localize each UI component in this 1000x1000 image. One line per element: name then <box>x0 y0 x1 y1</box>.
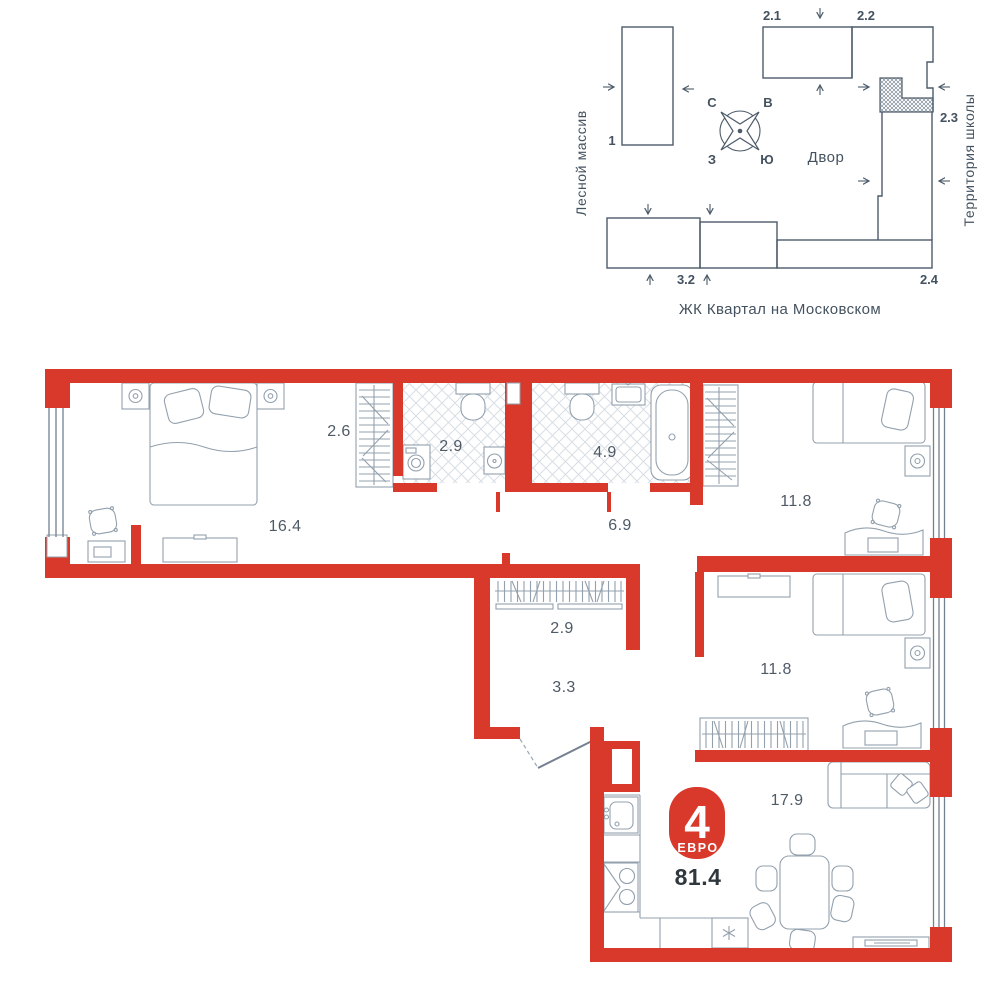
room-label-bedroom1: 11.8 <box>780 493 812 510</box>
hall-closet-rack <box>495 581 624 609</box>
room-label-hallway: 3.3 <box>552 679 575 696</box>
wardrobe-rack <box>356 383 393 487</box>
fridge <box>712 918 748 948</box>
window-bedroom2 <box>934 598 945 728</box>
kitchen-sink <box>604 797 638 833</box>
badge-type-label: ЕВРО <box>677 841 718 855</box>
total-area-value: 81.4 <box>675 864 722 890</box>
compass-south-label: Ю <box>760 152 773 167</box>
single-bed <box>813 382 925 443</box>
entrance-door <box>520 739 592 768</box>
nightstand-lamp <box>122 383 149 409</box>
building-2-2-label: 2.2 <box>857 8 875 23</box>
building-2-3-outline <box>878 112 932 240</box>
complex-caption: ЖК Квартал на Московском <box>679 301 881 318</box>
nightstand-lamp <box>257 383 284 409</box>
nightstand-lamp <box>905 638 930 668</box>
desk-chair <box>88 506 118 535</box>
desk-chair <box>865 687 896 717</box>
single-bed <box>813 574 925 635</box>
building-1-label: 1 <box>608 133 615 148</box>
tv-stand <box>163 535 237 562</box>
desk <box>843 721 921 748</box>
sofa <box>828 762 930 808</box>
window-living <box>934 797 945 927</box>
bedroom1-furniture <box>703 382 930 555</box>
building-2-1-label: 2.1 <box>763 8 781 23</box>
site-plan: С В З Ю 1 2.1 2.2 2.3 2.4 3.2 Лесной мас… <box>573 8 977 318</box>
nightstand-lamp <box>905 446 930 476</box>
wardrobe-rack <box>703 385 738 486</box>
compass-west-label: З <box>708 152 716 167</box>
desk <box>845 528 923 555</box>
kitchen-living-furniture <box>604 762 930 953</box>
room-label-bathroom: 4.9 <box>593 444 616 461</box>
stove <box>604 863 638 912</box>
building-1-outline <box>622 27 673 145</box>
compass-north-label: С <box>707 95 717 110</box>
floorplan-page: С В З Ю 1 2.1 2.2 2.3 2.4 3.2 Лесной мас… <box>0 0 1000 1000</box>
highlighted-unit-marker <box>880 78 933 112</box>
bathtub <box>651 385 693 480</box>
site-right-area-label: Территория школы <box>961 94 977 227</box>
site-left-area-label: Лесной массив <box>573 110 589 216</box>
tv-stand <box>718 574 790 597</box>
corner-sink <box>484 447 505 474</box>
building-3-2b-outline <box>700 222 777 268</box>
plan-canvas: С В З Ю 1 2.1 2.2 2.3 2.4 3.2 Лесной мас… <box>0 0 1000 1000</box>
building-3-2-label: 3.2 <box>677 272 695 287</box>
compass-east-label: В <box>763 95 772 110</box>
double-bed <box>150 383 257 505</box>
window-master-bedroom <box>49 408 63 537</box>
building-2-4-label: 2.4 <box>920 272 939 287</box>
console-shelf <box>853 937 929 949</box>
building-2-4-outline <box>777 240 932 268</box>
room-label-kitchen-living: 17.9 <box>771 792 804 809</box>
apartment-type-badge: 4 ЕВРО <box>669 787 725 859</box>
open-wardrobe <box>700 718 808 751</box>
desk-chair <box>870 499 901 530</box>
room-label-bedroom2: 11.8 <box>760 661 792 678</box>
desk <box>88 541 125 562</box>
room-label-hall-closet: 2.9 <box>550 620 573 637</box>
floor-plan: 16.4 2.6 2.9 4.9 6.9 11.8 11.8 2.9 3.3 1… <box>45 369 952 962</box>
wall-sink <box>612 381 645 405</box>
building-3-2-outline <box>607 218 700 268</box>
courtyard-label: Двор <box>808 149 845 166</box>
compass-icon: С В З Ю <box>707 95 773 167</box>
room-label-master-wardrobe: 2.6 <box>327 423 350 440</box>
dining-table <box>780 856 829 929</box>
window-bedroom1 <box>934 408 945 538</box>
room-label-master-bedroom: 16.4 <box>269 518 302 535</box>
duct-shaft <box>612 749 632 784</box>
room-label-corridor: 6.9 <box>608 517 631 534</box>
room-label-wc: 2.9 <box>439 438 462 455</box>
washing-machine <box>403 445 430 479</box>
wall-niche <box>47 535 67 557</box>
building-2-1-outline <box>763 27 852 78</box>
vent-shaft <box>507 383 520 404</box>
bedroom2-furniture <box>700 574 930 751</box>
building-2-3-label: 2.3 <box>940 110 958 125</box>
